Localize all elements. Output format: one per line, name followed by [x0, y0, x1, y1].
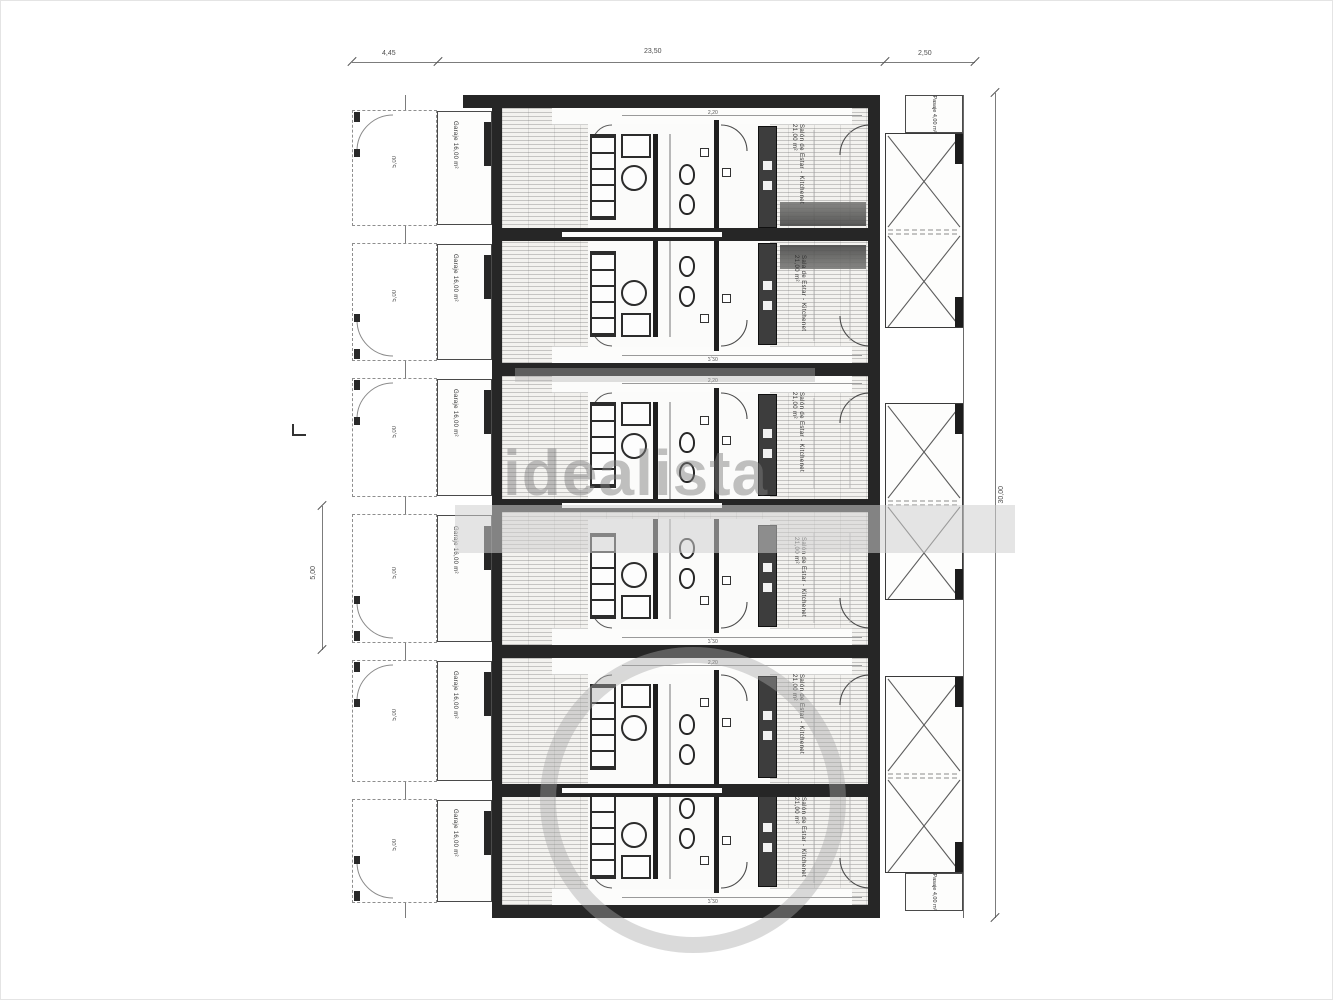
- wall-stub: [484, 255, 491, 299]
- row-dim-label: 5,00: [392, 567, 398, 579]
- kitchen-sink: [763, 583, 772, 592]
- top-dim-label-3: 2,50: [918, 50, 932, 57]
- door-swing-arc: [353, 111, 438, 231]
- passage-label-top: Pasaje 4,00 m²: [931, 96, 937, 133]
- room-label: Sala de Estar - Kitchenet 21,00 m²: [792, 255, 806, 347]
- door-swing-arc: [353, 661, 438, 781]
- sink-fixture: [722, 294, 731, 303]
- bed: [621, 134, 651, 158]
- x-diagonals: [886, 404, 964, 601]
- toilet-fixture: [679, 256, 695, 277]
- terrace-x-box: [885, 133, 963, 328]
- sink-fixture: [700, 596, 709, 605]
- section-mark: [292, 424, 306, 436]
- garage-box: Garaje 16,00 m²: [437, 111, 492, 225]
- bed: [621, 313, 651, 337]
- unit-row: Sala de Estar - Kitchenet 21,00 m² 2,20: [502, 241, 868, 363]
- garage-box: Garaje 16,00 m²: [437, 661, 492, 781]
- wall-stub: [484, 122, 491, 166]
- garage-box: Garaje 16,00 m²: [437, 379, 492, 496]
- door-swing-arc: [353, 379, 438, 499]
- bed: [621, 595, 651, 619]
- passage-label-bottom: Pasaje 4,00 m²: [931, 874, 937, 911]
- driveway-box: [352, 243, 437, 361]
- left-mid-dim-label: 5,00: [310, 566, 317, 580]
- sink-fixture: [700, 416, 709, 425]
- kitchen-sink: [763, 301, 772, 310]
- top-dim-label-1: 4,45: [382, 50, 396, 57]
- toilet-fixture: [679, 164, 695, 185]
- kitchen-counter: [758, 126, 777, 228]
- garage-label: Garaje 16,00 m²: [452, 389, 458, 486]
- x-diagonals: [886, 134, 964, 329]
- inner-dim-label: 2,20: [708, 355, 718, 360]
- row-dim-label: 5,00: [392, 156, 398, 168]
- toilet-fixture: [679, 286, 695, 307]
- terrace-x-box: [885, 403, 963, 600]
- left-mid-dimension-line: [322, 506, 323, 650]
- row-dim-label: 5,00: [392, 839, 398, 851]
- room-label: Salón de Estar - Kitchenet 21,00 m²: [790, 124, 804, 216]
- floor-plan-page: 4,45 23,50 2,50 30,00 5,00: [0, 0, 1333, 1000]
- kitchen-sink: [763, 281, 772, 290]
- garage-label: Garaje 16,00 m²: [452, 121, 458, 215]
- garage-box: Garaje 16,00 m²: [437, 244, 492, 360]
- driveway-box: [352, 110, 437, 226]
- stairs: [590, 251, 616, 337]
- terrace-x-box: [885, 676, 963, 873]
- kitchen-sink: [763, 181, 772, 190]
- x-diagonals: [886, 677, 964, 874]
- watermark-ring: [540, 647, 846, 953]
- row-dim-label: 5,00: [392, 426, 398, 438]
- bed: [621, 402, 651, 426]
- partition-wall: [653, 241, 658, 337]
- kitchen-sink: [763, 563, 772, 572]
- watermark-text: idealista: [503, 436, 768, 510]
- right-dim-label: 30,00: [998, 486, 1005, 504]
- wall-stub: [484, 672, 491, 716]
- sink-fixture: [700, 314, 709, 323]
- toilet-fixture: [679, 194, 695, 215]
- washbasin: [621, 280, 647, 306]
- driveway-box: [352, 799, 437, 903]
- sink-fixture: [722, 576, 731, 585]
- garage-label: Garaje 16,00 m²: [452, 671, 458, 770]
- sink-fixture: [700, 148, 709, 157]
- wall-stub: [484, 390, 491, 434]
- partition-wall: [653, 134, 658, 228]
- inner-dim-label: 2,20: [708, 637, 718, 642]
- watermark-band-upper: [515, 368, 815, 382]
- passage-box-top: Pasaje 4,00 m²: [905, 95, 963, 133]
- passage-box-bottom: Pasaje 4,00 m²: [905, 873, 963, 911]
- sink-fixture: [722, 168, 731, 177]
- wall-band: [463, 95, 880, 108]
- partition-wall: [714, 241, 719, 351]
- watermark-band: [455, 505, 1015, 553]
- kitchen-sink: [763, 161, 772, 170]
- unit-row: Salón de Estar - Kitchenet 21,00 m² 2,20: [502, 108, 868, 228]
- wall-stub: [484, 811, 491, 855]
- toilet-fixture: [679, 568, 695, 589]
- inner-dim-label: 2,20: [708, 110, 718, 115]
- garage-box: Garaje 16,00 m²: [437, 800, 492, 902]
- washbasin: [621, 562, 647, 588]
- wall-duct-stripe: [562, 232, 722, 237]
- washbasin: [621, 165, 647, 191]
- kitchen-counter: [758, 243, 777, 345]
- door-swing-arc: [353, 522, 438, 642]
- stairs: [590, 134, 616, 220]
- top-dim-label-2: 23,50: [644, 48, 662, 55]
- garage-label: Garaje 16,00 m²: [452, 254, 458, 350]
- driveway-box: [352, 660, 437, 782]
- room-label: Salón de Estar - Kitchenet 21,00 m²: [790, 392, 804, 484]
- garage-label: Garaje 16,00 m²: [452, 809, 458, 893]
- partition-wall: [714, 120, 719, 228]
- row-dim-label: 5,00: [392, 709, 398, 721]
- row-dim-label: 5,00: [392, 290, 398, 302]
